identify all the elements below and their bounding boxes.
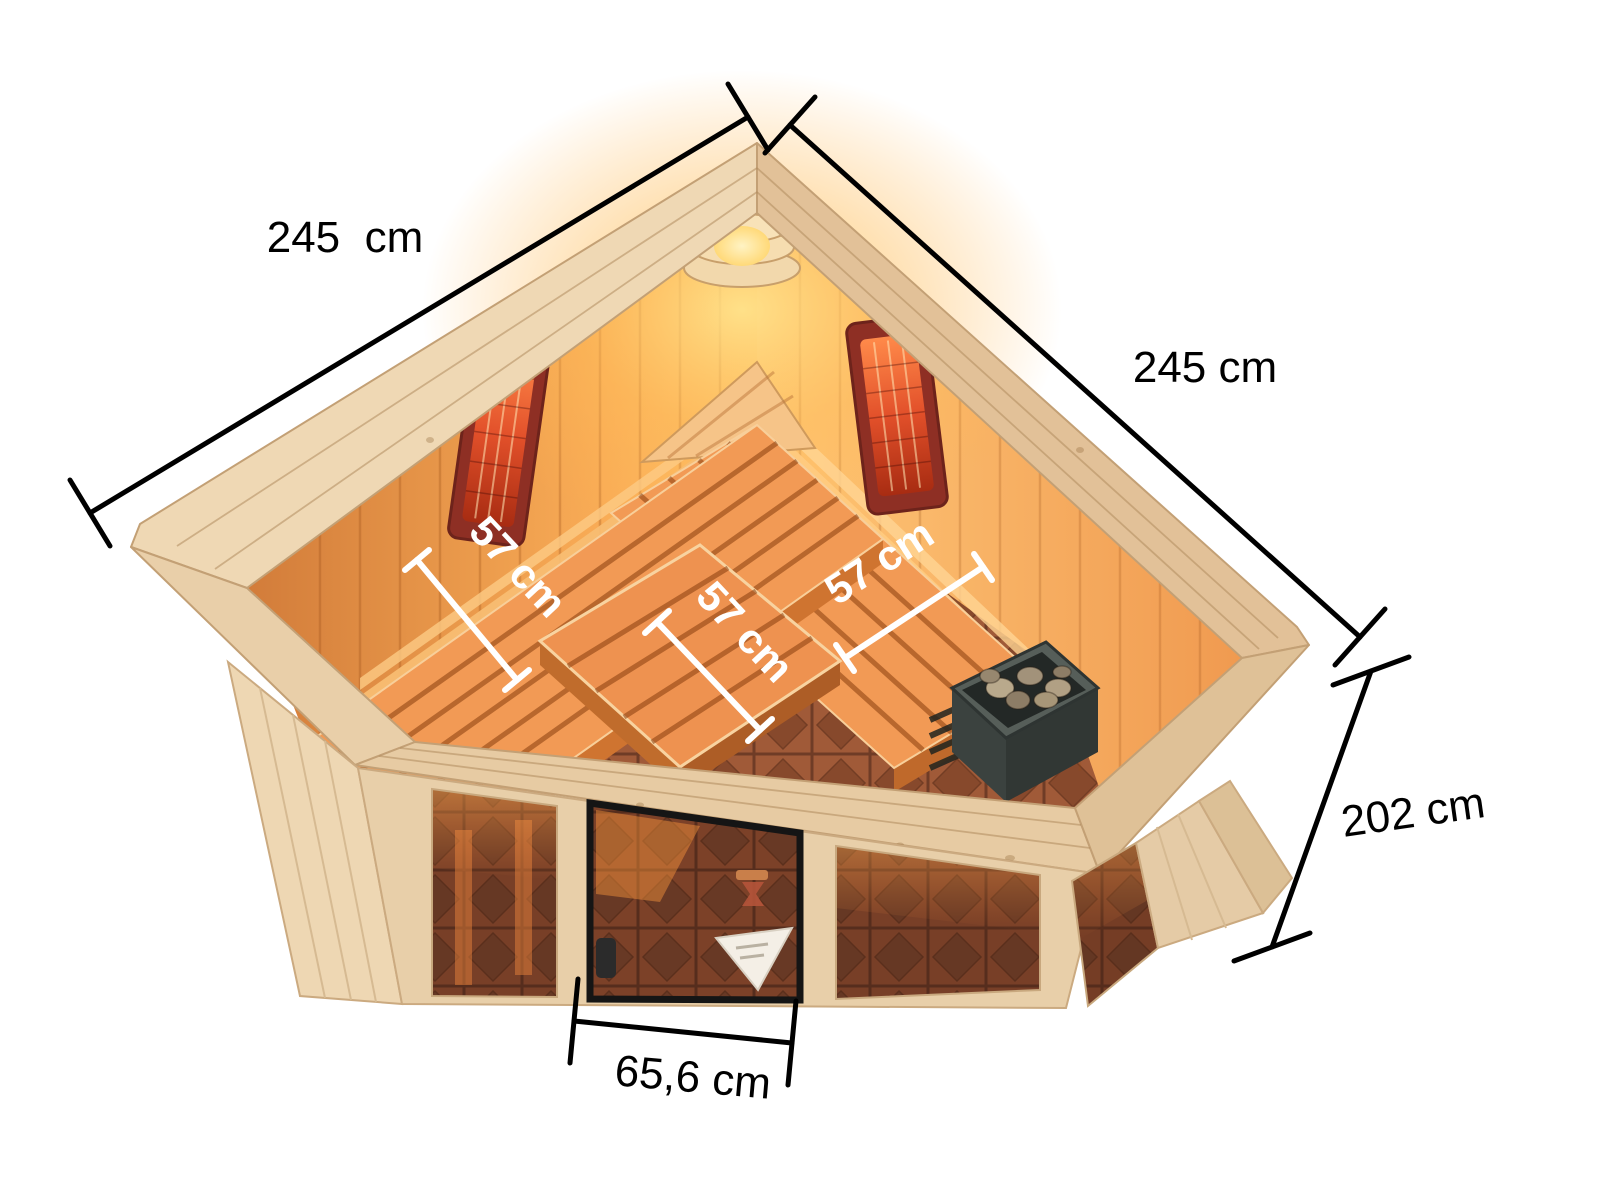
width-left-label: 245 cm: [267, 213, 424, 262]
diagram-canvas: 57 cm 57 cm 57 cm: [0, 0, 1600, 1200]
height-right-label: 202 cm: [1338, 778, 1488, 847]
glass-panel-left: [432, 789, 557, 997]
width-right-label: 245 cm: [1133, 343, 1277, 392]
door-width-label: 65,6 cm: [613, 1046, 773, 1108]
sauna-dimension-diagram: 57 cm 57 cm 57 cm: [0, 0, 1600, 1200]
sauna-door: [590, 803, 800, 1000]
door-handle: [596, 938, 616, 978]
dim-height-right: 202 cm: [1234, 657, 1488, 961]
